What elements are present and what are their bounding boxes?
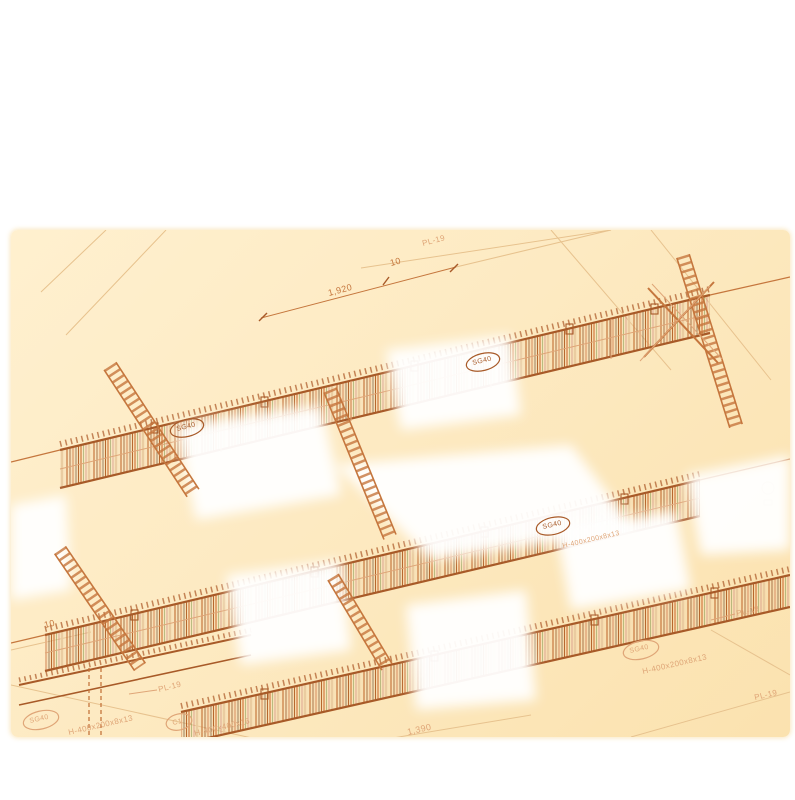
dimension-line-bottom <box>351 715 531 737</box>
member-tag-bottom-left: SG40 H-400x200x8x13 <box>21 707 134 737</box>
framing-plan-drawing: 1,920 10 10 1,390 SG40 SG40 SG40 H-400x2… <box>11 230 790 737</box>
dimension-text: 1,390 <box>406 722 432 737</box>
ladder-brace-right <box>677 254 742 428</box>
dimension-text: 10 <box>389 255 402 267</box>
member-tag-bottom-right: SG40 H-400x200x8x13 <box>621 637 708 676</box>
beam-tag: SG40 <box>629 644 650 655</box>
dimension-text: 10 <box>43 618 56 630</box>
beam-tag: SG40 <box>29 714 50 725</box>
plate-label: PL-19 <box>753 688 778 702</box>
blueprint-photo: 1,920 10 10 1,390 SG40 SG40 SG40 H-400x2… <box>11 230 790 737</box>
plate-label: PL-19 <box>421 233 446 248</box>
dimension-text: 1,920 <box>327 282 353 298</box>
plate-label: PL-19 <box>157 680 182 694</box>
page: 1,920 10 10 1,390 SG40 SG40 SG40 H-400x2… <box>0 0 795 800</box>
